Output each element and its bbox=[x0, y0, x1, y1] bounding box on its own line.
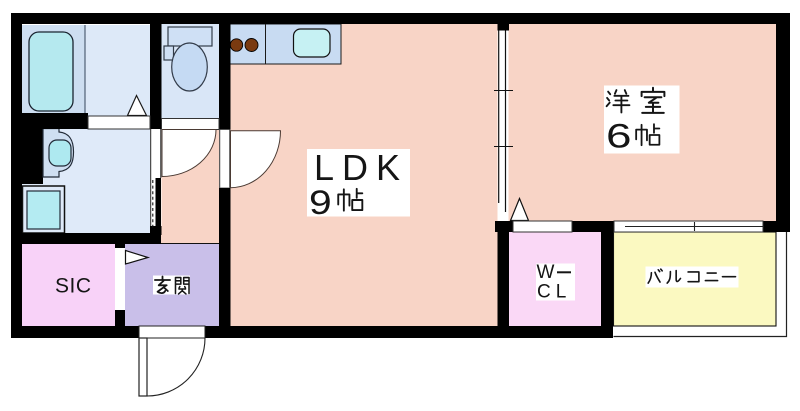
svg-text:LDK: LDK bbox=[314, 147, 408, 188]
svg-text:CL: CL bbox=[537, 282, 571, 303]
svg-text:6: 6 bbox=[606, 116, 632, 155]
svg-text:9: 9 bbox=[309, 183, 332, 221]
svg-text:W: W bbox=[537, 262, 555, 283]
svg-text:SIC: SIC bbox=[55, 275, 92, 298]
